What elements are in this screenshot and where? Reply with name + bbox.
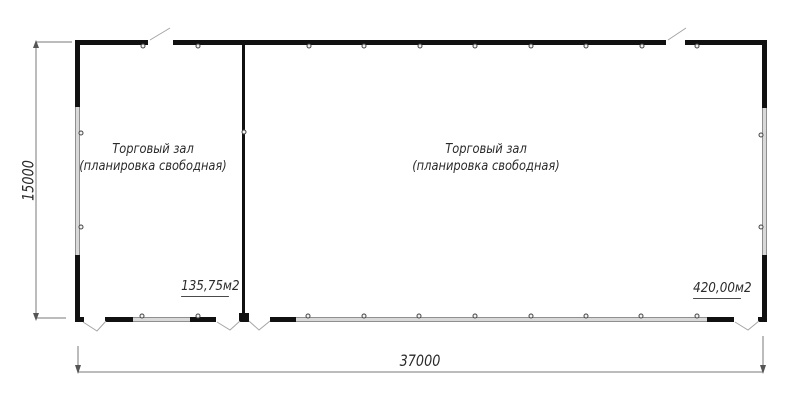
dimension-vertical <box>33 40 72 321</box>
room-left-name: Торговый зал <box>69 141 236 158</box>
room-label-left: Торговый зал (планировка свободная) <box>69 141 236 175</box>
door-swing-top-left <box>150 28 170 40</box>
door-swing-divider-right <box>249 321 270 330</box>
door-swing-divider-left <box>217 321 240 330</box>
dimension-height-value: 15000 <box>19 157 38 205</box>
dimension-width-value: 37000 <box>388 351 452 370</box>
dimension-arrow-down <box>33 313 39 321</box>
door-swing-bottom-right <box>735 321 759 330</box>
dimension-arrow-up <box>33 40 39 48</box>
floor-plan: Торговый зал (планировка свободная) Торг… <box>0 0 800 414</box>
dimension-arrow-right-end <box>760 365 766 374</box>
door-swing-bottom-left <box>83 321 106 331</box>
room-label-right: Торговый зал (планировка свободная) <box>398 141 574 175</box>
room-right-area: 420,00м2 <box>693 281 741 299</box>
door-swing-top-right <box>668 28 686 40</box>
room-left-area: 135,75м2 <box>181 279 229 297</box>
wall-ticks <box>79 44 763 318</box>
room-right-name: Торговый зал <box>398 141 574 158</box>
room-right-subname: (планировка свободная) <box>398 158 574 175</box>
dimension-arrow-left-end <box>75 365 81 374</box>
room-left-subname: (планировка свободная) <box>69 158 236 175</box>
